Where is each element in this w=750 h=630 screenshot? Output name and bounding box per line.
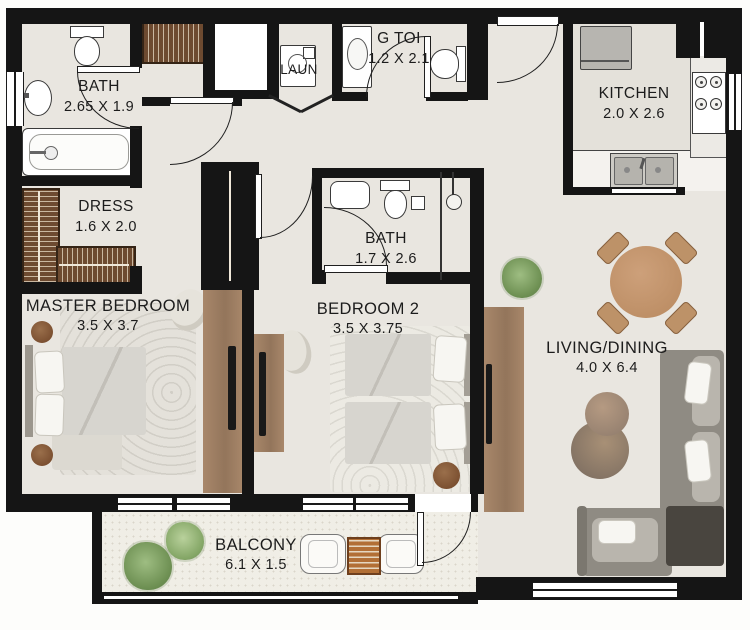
gtoi-name: G TOI bbox=[368, 29, 430, 50]
bath1-label: BATH 2.65 X 1.9 bbox=[64, 77, 134, 117]
dress-wardrobe-rail-v bbox=[38, 191, 40, 281]
living-window bbox=[533, 582, 677, 598]
balcony-name: BALCONY bbox=[215, 534, 297, 556]
bedroom2-window-2 bbox=[356, 497, 408, 511]
master-bed-rug bbox=[52, 432, 122, 470]
bath1-dims: 2.65 X 1.9 bbox=[64, 98, 134, 118]
wall-gtoi-bottom-right bbox=[426, 92, 468, 101]
dress-label: DRESS 1.6 X 2.0 bbox=[75, 197, 137, 237]
sofa-pillow-3 bbox=[598, 520, 636, 544]
wall-bath1-right-lower bbox=[130, 126, 142, 188]
master-tv-console bbox=[203, 288, 243, 493]
master-pillow-2 bbox=[34, 394, 64, 437]
tub-faucet-icon bbox=[44, 146, 58, 160]
wall-kitchen-left bbox=[563, 24, 573, 195]
burner-3 bbox=[695, 98, 707, 110]
kitchen-shaft-gap bbox=[700, 22, 704, 56]
burner-4 bbox=[710, 98, 722, 110]
sofa-pillow-2 bbox=[684, 439, 712, 483]
dress-name: DRESS bbox=[75, 197, 137, 218]
wall-bath2-bottom bbox=[386, 272, 482, 284]
kitchen-counter-pass bbox=[612, 189, 676, 193]
balcony-chair-2-cushion bbox=[386, 540, 416, 568]
kitchen-name: KITCHEN bbox=[599, 84, 670, 105]
balcony-door-opening bbox=[415, 494, 471, 512]
wall-bath2-left bbox=[312, 178, 322, 278]
kitchen-window bbox=[728, 74, 742, 130]
bedroom2-window-1 bbox=[303, 497, 353, 511]
living-tv-icon bbox=[486, 364, 492, 444]
bath1-name: BATH bbox=[64, 77, 134, 98]
living-plant-icon bbox=[502, 258, 542, 298]
shower-head-icon bbox=[446, 194, 462, 210]
twin-bed2-pillow bbox=[433, 403, 467, 451]
duct-shaft bbox=[215, 24, 267, 90]
bath2-bin bbox=[411, 196, 425, 210]
laundry-label: LAUN bbox=[280, 61, 318, 79]
dining-table bbox=[610, 246, 682, 318]
twin-bed1-pillow bbox=[432, 335, 467, 383]
master-headboard bbox=[25, 345, 33, 437]
bedroom2-side-table bbox=[433, 462, 460, 489]
sink-icon bbox=[24, 80, 52, 116]
wall-shaft-right bbox=[267, 24, 279, 98]
wall-top bbox=[6, 8, 742, 24]
kitchen-label: KITCHEN 2.0 X 2.6 bbox=[599, 84, 670, 124]
wall-bath1-dress bbox=[22, 176, 130, 186]
wall-gtoi-right bbox=[467, 24, 488, 100]
bath2-toilet-icon bbox=[384, 190, 407, 219]
gtoi-sink-icon bbox=[347, 38, 368, 70]
master-pillow-1 bbox=[34, 350, 65, 393]
burner-2 bbox=[710, 76, 722, 88]
drain-left bbox=[624, 167, 630, 173]
master-tv-icon bbox=[228, 346, 236, 430]
kitchen-shaft-2 bbox=[704, 20, 728, 58]
twin-bed2-duvet bbox=[345, 402, 431, 464]
bath2-dims: 1.7 X 2.6 bbox=[355, 250, 417, 270]
master-window-2 bbox=[177, 497, 230, 511]
living-dining-label: LIVING/DINING 4.0 X 6.4 bbox=[546, 337, 668, 379]
dress-dims: 1.6 X 2.0 bbox=[75, 218, 137, 238]
twin-bed1-duvet bbox=[345, 334, 431, 396]
bedroom2-tv-icon bbox=[259, 352, 266, 436]
floor-plan: BATH 2.65 X 1.9 DRESS 1.6 X 2.0 MASTER B… bbox=[0, 0, 750, 630]
bath2-name: BATH bbox=[355, 229, 417, 250]
gtoi-dims: 1.2 X 2.1 bbox=[368, 50, 430, 70]
hall-wardrobe bbox=[142, 22, 206, 64]
wall-master-top bbox=[22, 282, 142, 294]
master-nightstand-2 bbox=[31, 444, 53, 466]
tub-spout bbox=[30, 151, 46, 154]
living-dining-dims: 4.0 X 6.4 bbox=[546, 359, 668, 379]
balcony-chair-1-cushion bbox=[308, 540, 338, 568]
sofa-corner-ottoman bbox=[666, 506, 724, 566]
wall-gtoi-bottom-left bbox=[332, 92, 368, 101]
drain-right bbox=[655, 167, 661, 173]
bedroom2-label: BEDROOM 2 3.5 X 3.75 bbox=[317, 298, 420, 340]
wall-balcony-left bbox=[92, 512, 102, 600]
master-bedroom-label: MASTER BEDROOM 3.5 X 3.7 bbox=[26, 295, 190, 337]
wall-bath1-right-upper bbox=[130, 24, 142, 68]
laundry-name: LAUN bbox=[280, 61, 318, 79]
gtoi-label: G TOI 1.2 X 2.1 bbox=[368, 29, 430, 69]
kitchen-dims: 2.0 X 2.6 bbox=[599, 105, 670, 125]
master-bedroom-dims: 3.5 X 3.7 bbox=[26, 317, 190, 337]
dress-wardrobe-vertical bbox=[22, 188, 60, 288]
kitchen-shaft-1 bbox=[676, 20, 700, 58]
balcony-rail-line bbox=[104, 596, 458, 599]
wall-master-bedroom2 bbox=[242, 288, 254, 494]
balcony-plant-2 bbox=[166, 522, 204, 560]
wall-shaft-left bbox=[203, 24, 215, 98]
balcony-plant-1 bbox=[124, 542, 172, 590]
bath1-window bbox=[6, 72, 24, 126]
balcony-dims: 6.1 X 1.5 bbox=[215, 556, 297, 576]
master-bedroom-name: MASTER BEDROOM bbox=[26, 295, 190, 317]
wall-hall-living bbox=[470, 168, 484, 494]
shower-divider bbox=[440, 172, 442, 280]
fridge-door-line bbox=[581, 60, 629, 62]
wall-master-door-stub bbox=[142, 97, 170, 106]
bath2-label: BATH 1.7 X 2.6 bbox=[355, 229, 417, 269]
sofa-pillow-1 bbox=[684, 361, 713, 406]
gtoi-toilet-icon bbox=[430, 49, 459, 79]
bedroom2-name: BEDROOM 2 bbox=[317, 298, 420, 320]
master-window-1 bbox=[118, 497, 172, 511]
master-bed-duvet bbox=[62, 347, 146, 435]
coffee-table-small bbox=[585, 392, 629, 436]
bedroom2-dims: 3.5 X 3.75 bbox=[317, 320, 420, 340]
toilet-icon bbox=[74, 36, 100, 66]
balcony-label: BALCONY 6.1 X 1.5 bbox=[215, 534, 297, 576]
shower-pipe bbox=[452, 172, 454, 196]
middle-wardrobe-rail bbox=[229, 171, 231, 281]
living-dining-name: LIVING/DINING bbox=[546, 337, 668, 359]
fridge-icon bbox=[580, 26, 632, 70]
balcony-table bbox=[347, 537, 381, 575]
burner-1 bbox=[695, 76, 707, 88]
dress-wardrobe-rail-h bbox=[59, 264, 129, 266]
sofa-armrest bbox=[577, 506, 587, 576]
bath2-sink-icon bbox=[330, 181, 370, 209]
wall-laundry-right bbox=[332, 24, 342, 100]
